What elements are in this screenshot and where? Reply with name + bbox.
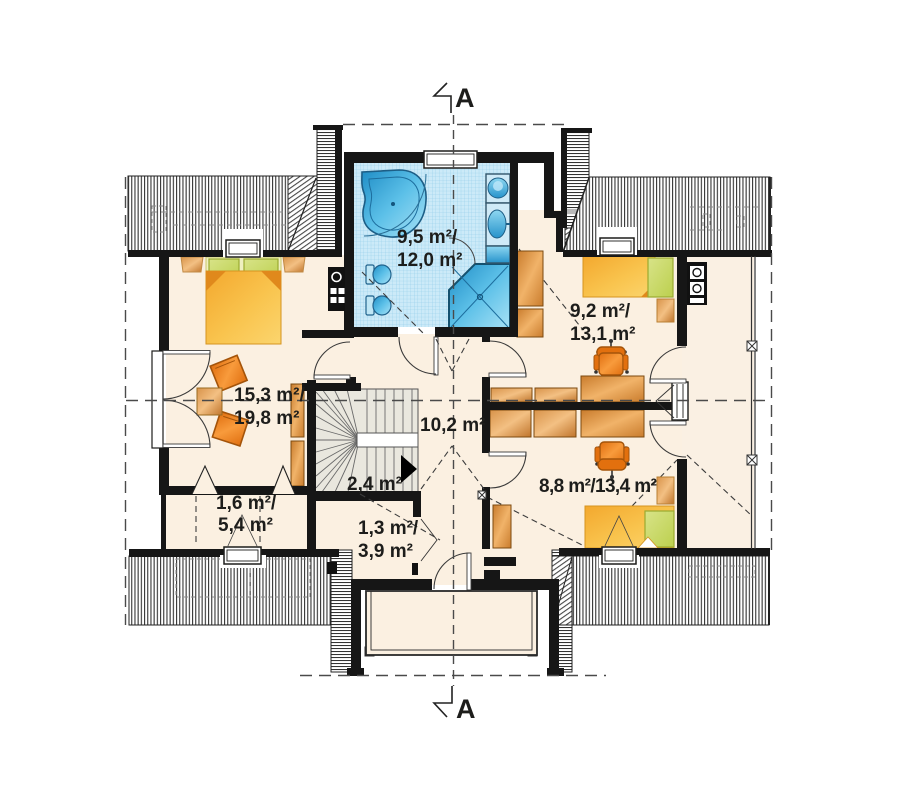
- svg-text:A: A: [456, 694, 476, 724]
- svg-text:10,2 m²: 10,2 m²: [420, 415, 485, 436]
- svg-text:19,8 m²: 19,8 m²: [234, 408, 299, 429]
- svg-text:1,6 m²/: 1,6 m²/: [216, 493, 277, 514]
- svg-text:13,1 m²: 13,1 m²: [570, 324, 635, 345]
- svg-text:1,3 m²/: 1,3 m²/: [358, 518, 419, 539]
- svg-text:9,2 m²/: 9,2 m²/: [570, 301, 631, 322]
- svg-text:5,4 m²: 5,4 m²: [218, 515, 273, 536]
- svg-text:3,9 m²: 3,9 m²: [358, 541, 413, 562]
- svg-text:2,4 m²: 2,4 m²: [347, 474, 402, 495]
- svg-text:A: A: [455, 83, 475, 113]
- svg-text:8,8 m²/13,4 m²: 8,8 m²/13,4 m²: [539, 476, 657, 497]
- svg-text:12,0 m²: 12,0 m²: [397, 250, 462, 271]
- svg-text:15,3 m²/: 15,3 m²/: [234, 385, 305, 406]
- svg-text:9,5 m²/: 9,5 m²/: [397, 227, 458, 248]
